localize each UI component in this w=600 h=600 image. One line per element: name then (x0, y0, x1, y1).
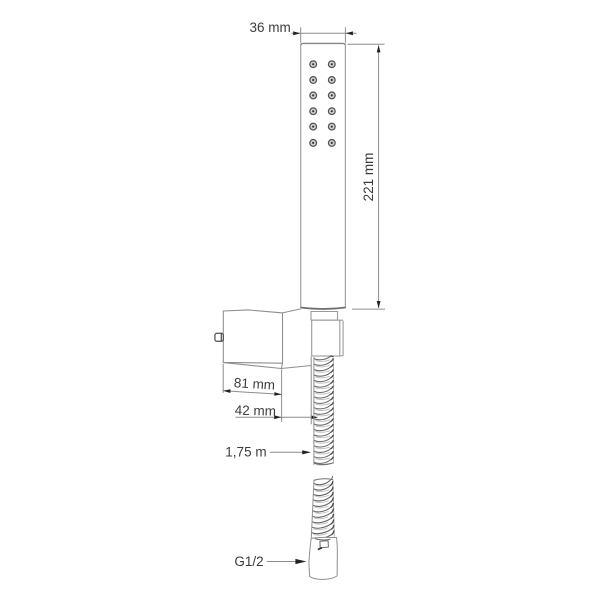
svg-text:36 mm: 36 mm (250, 20, 291, 35)
svg-text:81 mm: 81 mm (233, 375, 275, 392)
svg-text:42 mm: 42 mm (235, 403, 277, 419)
svg-text:1,75 m: 1,75 m (225, 445, 266, 460)
svg-text:221 mm: 221 mm (361, 153, 376, 202)
svg-text:G1/2: G1/2 (234, 554, 263, 569)
